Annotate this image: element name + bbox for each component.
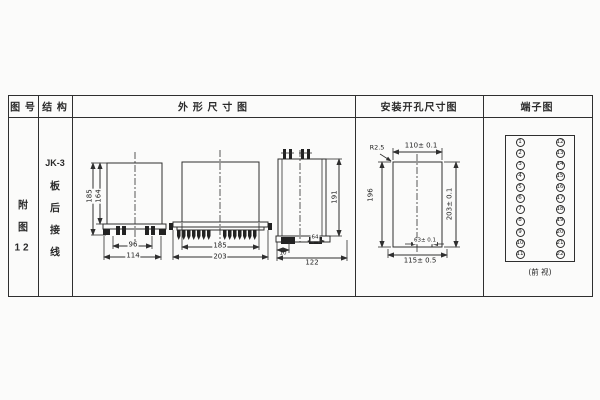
header-divider: [8, 117, 592, 118]
side-total-dim: 122: [305, 260, 318, 267]
terminal-circle: 18: [556, 205, 565, 214]
terminal-comb-right: [223, 230, 257, 240]
terminal-circle: 15: [556, 172, 565, 181]
terminal-circle: 19: [556, 217, 565, 226]
header-terminal: 端子图: [521, 99, 554, 114]
front-height-inner-dim: 164: [96, 188, 103, 203]
side-small-dim: 10: [280, 251, 287, 257]
terminal-circle: 4: [516, 172, 525, 181]
structure-line-5: 线: [50, 244, 60, 259]
side-mid-dim: 64: [311, 235, 320, 241]
header-structure: 结 构: [42, 99, 68, 114]
mounting-height-right-dim: 203± 0.1: [447, 187, 454, 222]
terminal-circle: 10: [516, 239, 525, 248]
mounting-cutout-drawing: [364, 140, 480, 268]
terminal-circle: 17: [556, 194, 565, 203]
structure-line-2: 板: [50, 178, 60, 193]
header-fig-no: 图 号: [10, 99, 36, 114]
col-divider-2: [72, 95, 73, 296]
terminal-circle: 5: [516, 183, 525, 192]
structure-line-1: JK-3: [45, 158, 65, 168]
terminal-circle: 8: [516, 217, 525, 226]
middle-width-outer-dim: 203: [212, 254, 227, 261]
mounting-notch-dim: 63± 0.1: [413, 238, 437, 244]
middle-width-inner-dim: 185: [212, 243, 227, 250]
fig-no-line-3: 12: [14, 243, 31, 254]
mounting-radius-label: R2.5: [370, 145, 385, 152]
terminal-circle: 6: [516, 194, 525, 203]
fig-no-line-2: 图: [18, 219, 28, 234]
col-divider-3: [355, 95, 356, 296]
terminal-circle: 20: [556, 228, 565, 237]
side-view-drawing: [272, 142, 352, 268]
terminal-circle: 16: [556, 183, 565, 192]
terminal-circle: 3: [516, 161, 525, 170]
side-height-dim: 191: [332, 189, 339, 204]
front-width-inner-dim: 96: [128, 242, 139, 249]
drawing-sheet: 图 号 结 构 外 形 尺 寸 图 安装开孔尺寸图 端子图 附 图 12 JK-…: [0, 0, 600, 400]
terminal-circle: 14: [556, 161, 565, 170]
fig-no-line-1: 附: [18, 197, 28, 212]
structure-line-3: 后: [50, 200, 60, 215]
header-outline: 外 形 尺 寸 图: [178, 99, 248, 114]
top-studs: [281, 149, 312, 159]
terminal-circle: 22: [556, 250, 565, 259]
terminal-circle: 7: [516, 205, 525, 214]
terminal-circle: 9: [516, 228, 525, 237]
middle-view-drawing: [168, 146, 272, 268]
terminal-circle: 1: [516, 138, 525, 147]
col-divider-4: [483, 95, 484, 296]
terminal-caption: (前 视): [528, 269, 551, 276]
mounting-width-top-dim: 110± 0.1: [405, 143, 438, 150]
front-height-outer-dim: 185: [87, 188, 94, 203]
terminal-circle: 12: [556, 138, 565, 147]
front-width-outer-dim: 114: [125, 253, 140, 260]
structure-line-4: 接: [50, 222, 60, 237]
terminal-circle: 11: [516, 250, 525, 259]
terminal-circle: 2: [516, 149, 525, 158]
mounting-height-left-dim: 196: [368, 187, 375, 202]
mounting-width-bottom-dim: 115± 0.5: [403, 258, 438, 265]
col-divider-1: [38, 95, 39, 296]
header-mounting: 安装开孔尺寸图: [381, 99, 458, 114]
terminal-circle: 13: [556, 149, 565, 158]
terminal-box: 12345678910111213141516171819202122: [505, 135, 575, 262]
terminal-circle: 21: [556, 239, 565, 248]
